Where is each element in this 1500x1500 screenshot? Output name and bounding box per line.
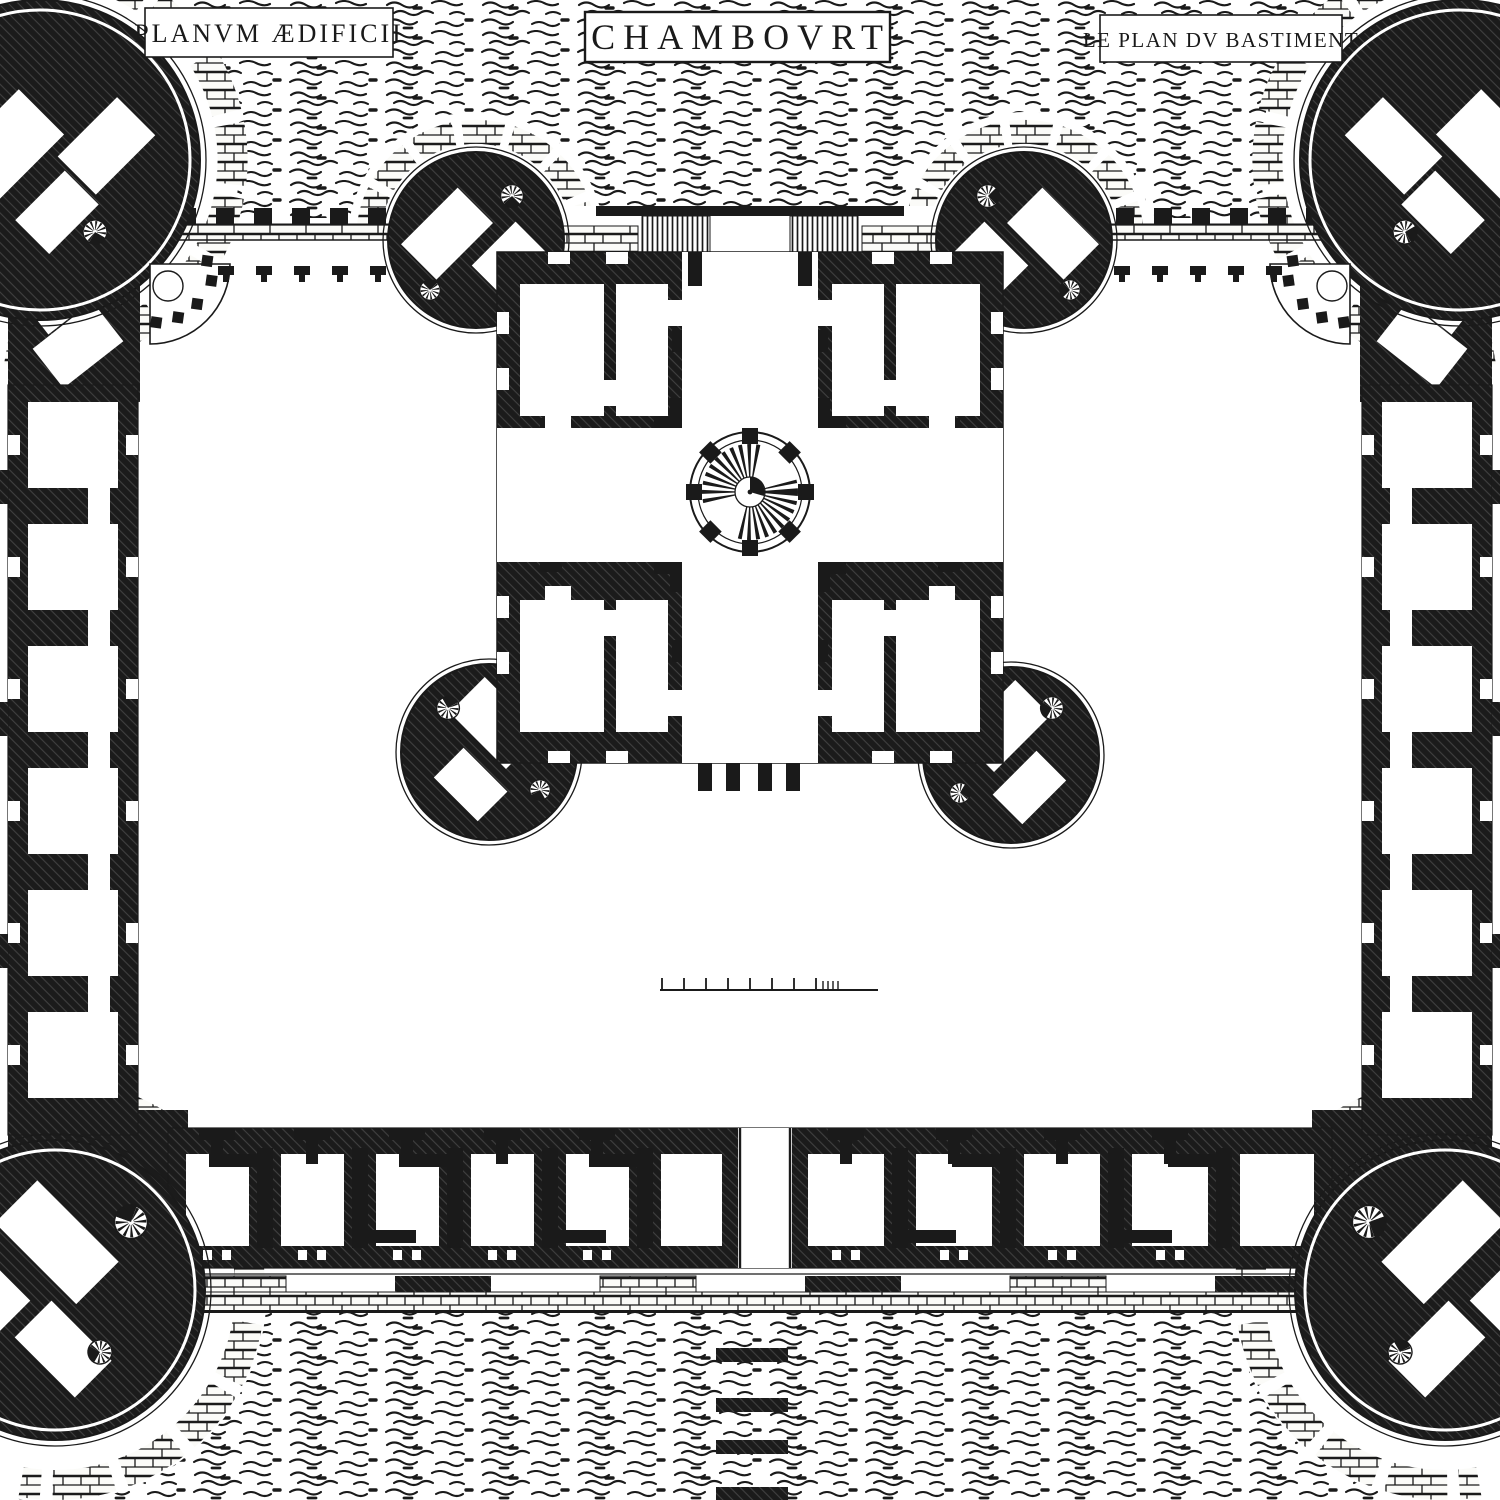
label-planum-aedificii: PLANVM ÆDIFICII	[134, 19, 404, 48]
east-wing	[1362, 385, 1500, 1135]
double-spiral-staircase	[686, 428, 814, 556]
cartouche-left: PLANVM ÆDIFICII	[134, 8, 404, 57]
keep-north-terrace	[556, 206, 944, 258]
cartouche-right: LE PLAN DV BASTIMENT	[1083, 15, 1359, 62]
engraved-plan-plate: PLANVM ÆDIFICII CHAMBOVRT LE PLAN DV BAS…	[0, 0, 1500, 1500]
cartouche-title: CHAMBOVRT	[585, 12, 891, 62]
south-gate-passage	[738, 1128, 792, 1268]
chambord-plan-drawing: PLANVM ÆDIFICII CHAMBOVRT LE PLAN DV BAS…	[0, 0, 1500, 1500]
plan-title: CHAMBOVRT	[591, 17, 891, 57]
label-le-plan-du-bastiment: LE PLAN DV BASTIMENT	[1083, 28, 1359, 52]
south-wing	[140, 1128, 1360, 1274]
west-wing	[0, 385, 138, 1135]
